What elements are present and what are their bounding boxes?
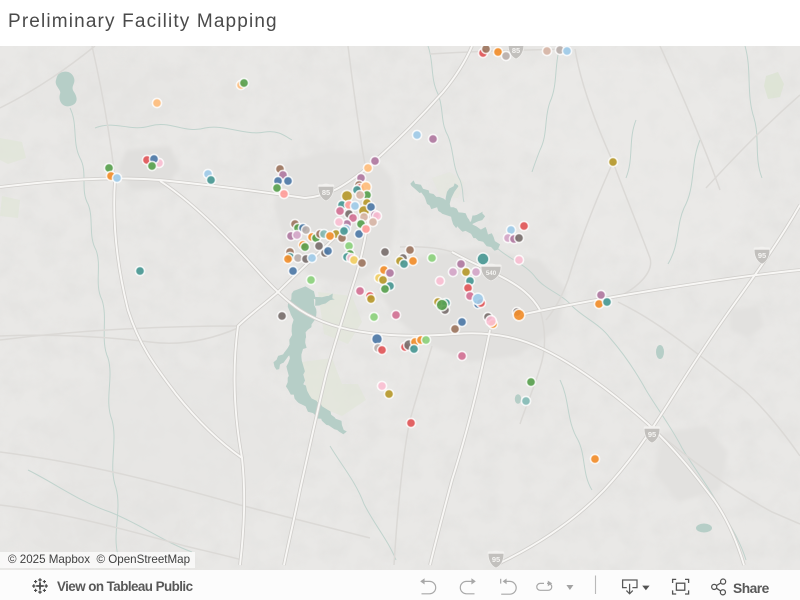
svg-text:95: 95	[648, 430, 656, 439]
svg-text:85: 85	[512, 46, 520, 55]
svg-text:95: 95	[758, 251, 766, 260]
svg-text:85: 85	[322, 188, 330, 197]
svg-text:95: 95	[492, 555, 500, 564]
svg-text:540: 540	[486, 270, 497, 277]
